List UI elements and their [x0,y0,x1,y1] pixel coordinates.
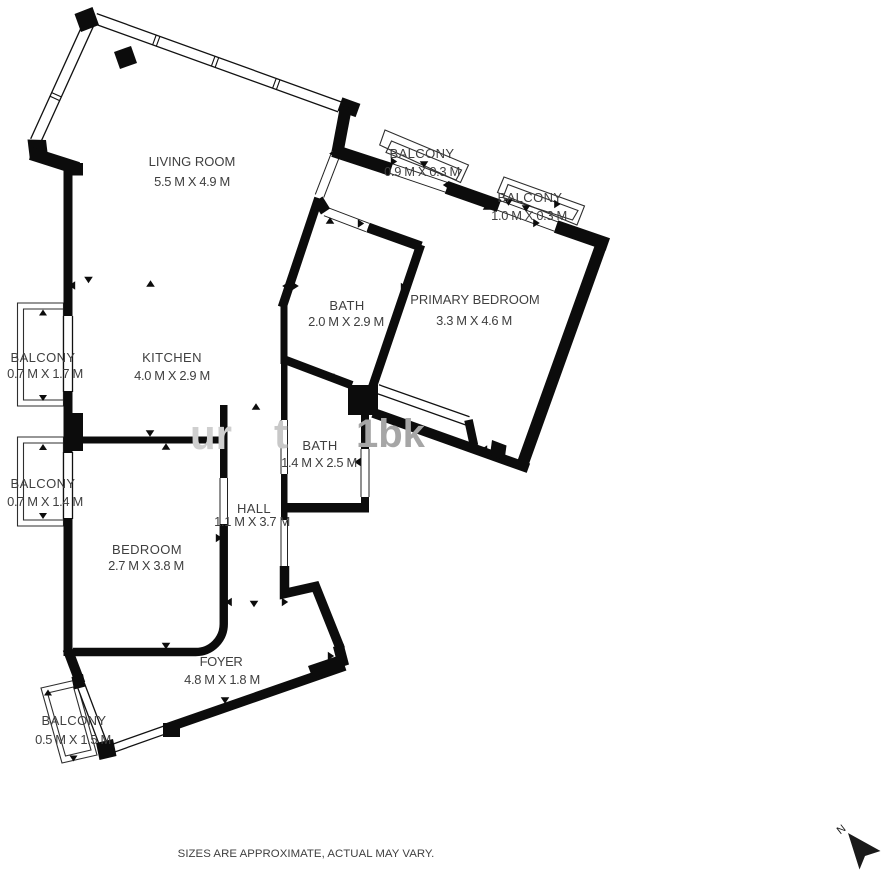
svg-text:LIVING ROOM: LIVING ROOM [149,154,236,169]
svg-text:ur: ur [190,411,232,458]
svg-text:BALCONY: BALCONY [42,713,107,728]
svg-text:BALCONY: BALCONY [11,476,76,491]
svg-text:2.7 M X 3.8 M: 2.7 M X 3.8 M [108,558,184,573]
svg-text:4.8 M X 1.8 M: 4.8 M X 1.8 M [184,672,260,687]
svg-text:BATH: BATH [329,298,364,313]
svg-text:0.7 M X 1.7 M: 0.7 M X 1.7 M [7,366,83,381]
svg-text:PRIMARY BEDROOM: PRIMARY BEDROOM [410,292,540,307]
svg-text:0.5 M X 1.5 M: 0.5 M X 1.5 M [35,732,111,747]
svg-text:FOYER: FOYER [200,654,243,669]
svg-text:4.0 M X 2.9 M: 4.0 M X 2.9 M [134,368,210,383]
svg-text:5.5 M X 4.9 M: 5.5 M X 4.9 M [154,174,230,189]
svg-text:t: t [274,410,288,457]
svg-text:1.1 M X 3.7 M: 1.1 M X 3.7 M [214,514,290,529]
svg-text:1.0 M X 0.3 M: 1.0 M X 0.3 M [491,208,567,223]
svg-text:1.4 M X 2.5 M: 1.4 M X 2.5 M [281,455,357,470]
svg-text:KITCHEN: KITCHEN [142,350,202,365]
svg-text:BALCONY: BALCONY [390,146,455,161]
svg-text:0.9 M X 0.3 M: 0.9 M X 0.3 M [384,164,460,179]
svg-text:BEDROOM: BEDROOM [112,542,182,557]
svg-text:0.7 M X 1.4 M: 0.7 M X 1.4 M [7,494,83,509]
svg-text:2.0 M X 2.9 M: 2.0 M X 2.9 M [308,314,384,329]
svg-text:BALCONY: BALCONY [498,190,563,205]
svg-text:BATH: BATH [302,438,337,453]
svg-text:1bk: 1bk [356,412,426,456]
svg-text:BALCONY: BALCONY [11,350,76,365]
svg-text:3.3 M X 4.6 M: 3.3 M X 4.6 M [436,313,512,328]
svg-text:SIZES ARE APPROXIMATE, ACTUAL: SIZES ARE APPROXIMATE, ACTUAL MAY VARY. [178,848,435,860]
